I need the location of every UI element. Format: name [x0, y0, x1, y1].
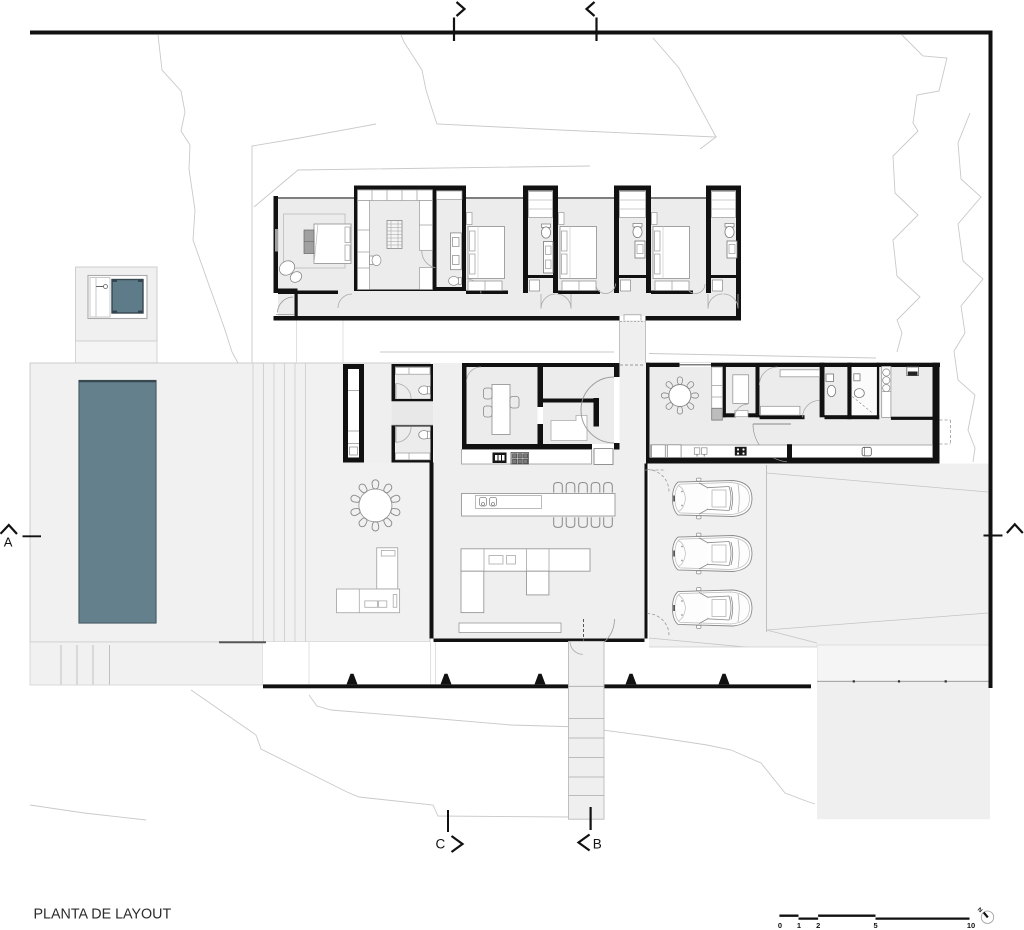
svg-text:10: 10 [967, 921, 975, 930]
svg-text:A: A [4, 535, 13, 550]
svg-text:0: 0 [778, 921, 782, 930]
svg-text:5: 5 [874, 921, 878, 930]
svg-text:1: 1 [797, 921, 801, 930]
svg-text:2: 2 [816, 921, 820, 930]
svg-text:PLANTA DE LAYOUT: PLANTA DE LAYOUT [34, 907, 172, 923]
svg-text:C: C [436, 837, 446, 852]
svg-text:B: B [593, 837, 602, 852]
